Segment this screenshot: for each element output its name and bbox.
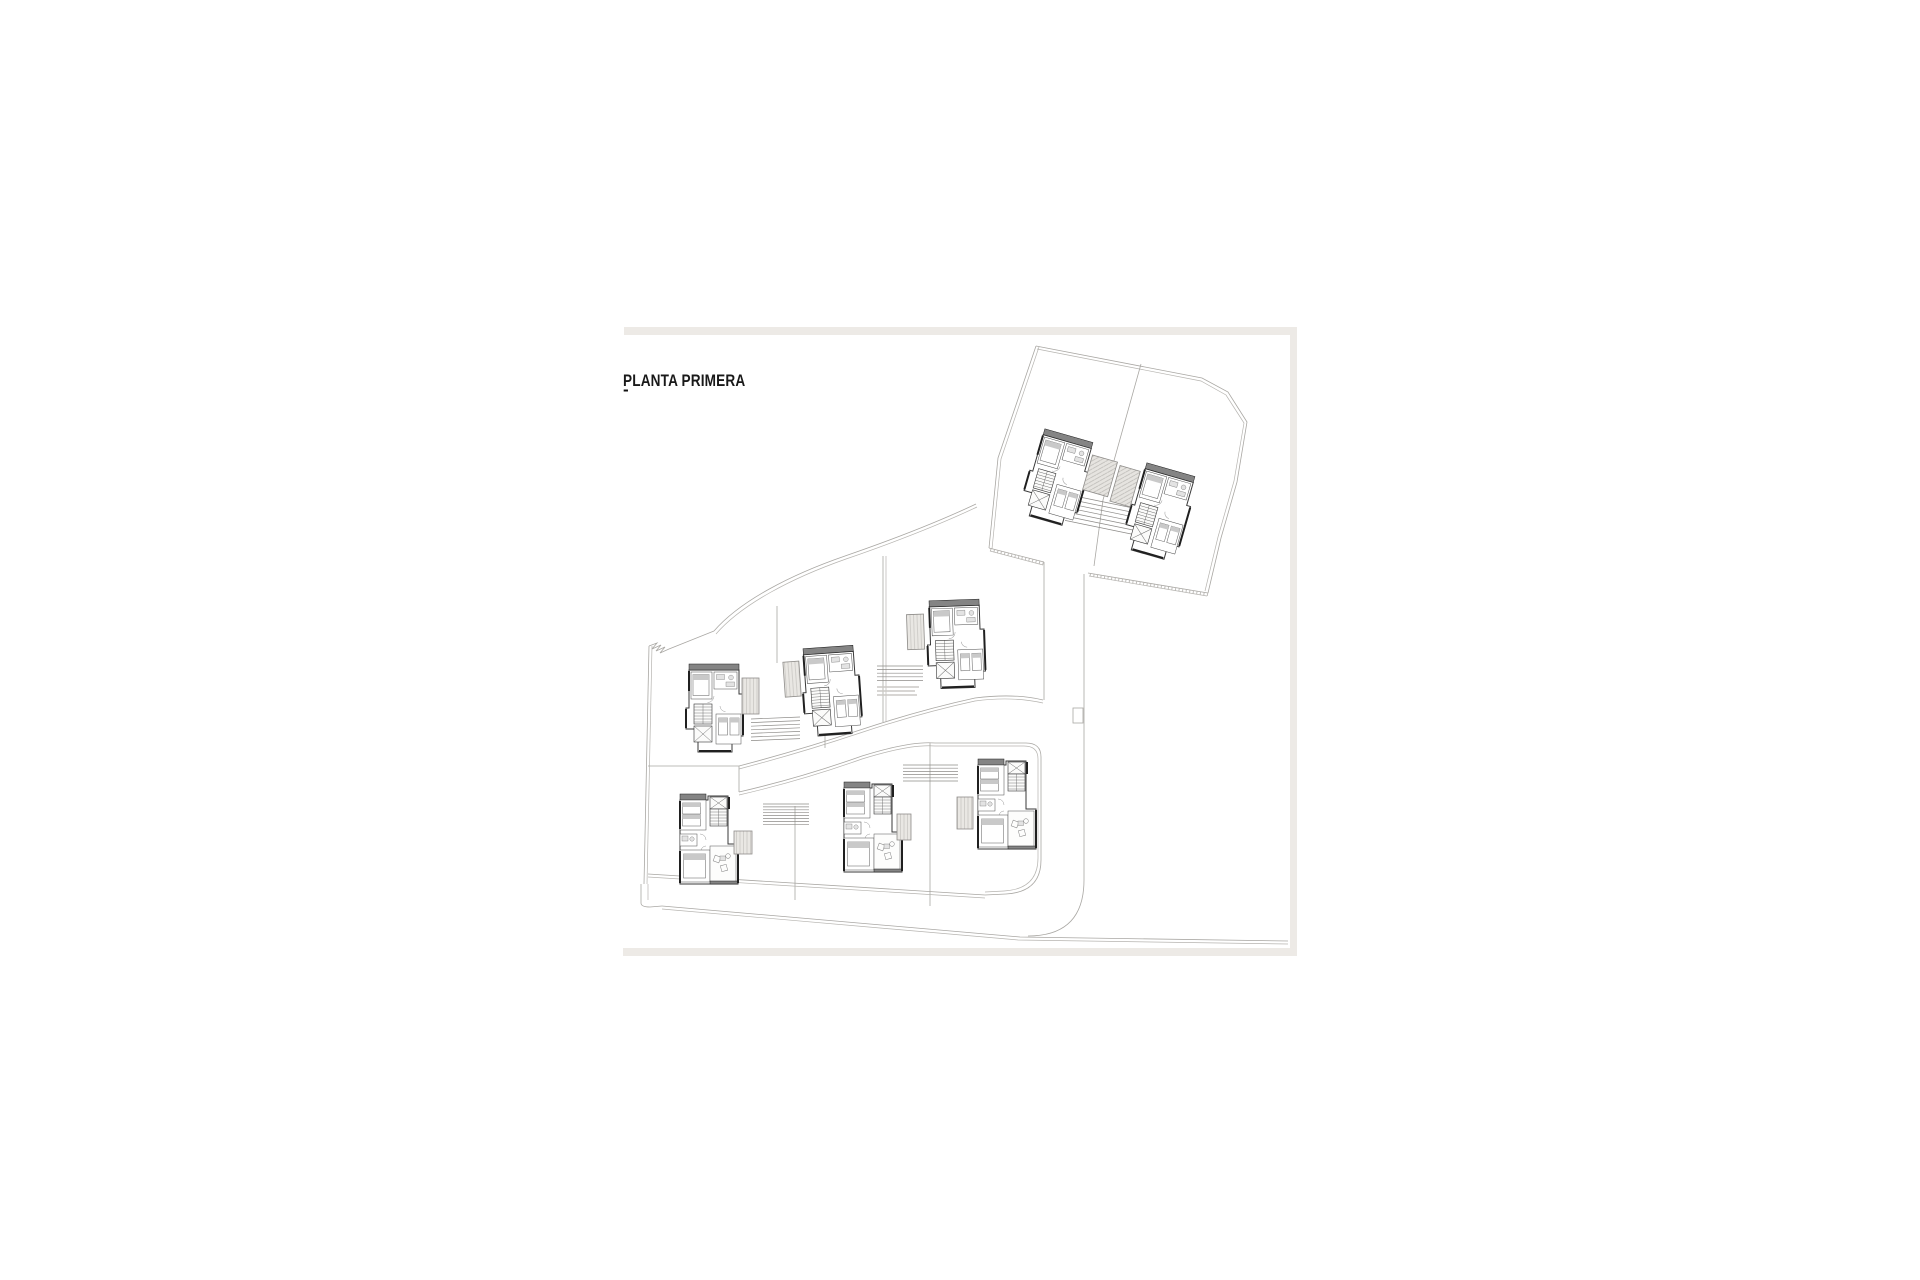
villa-3-plan xyxy=(686,664,743,752)
villa-5-plan xyxy=(926,599,986,689)
boundary-north-sawtooth xyxy=(649,631,714,653)
villa-7-plan xyxy=(844,782,902,872)
road-lower-edge-inner xyxy=(739,746,935,795)
villa-8-plan xyxy=(978,759,1036,849)
road-upper-edge xyxy=(739,696,1043,766)
steps-3 xyxy=(877,666,923,680)
boundary-west xyxy=(644,646,649,884)
villa-1 xyxy=(1018,428,1121,535)
steps-1-line xyxy=(1065,512,1133,526)
steps-4 xyxy=(763,804,809,824)
road-south-edge xyxy=(662,906,1288,941)
retaining-wall-west-inner xyxy=(990,551,1043,565)
villas xyxy=(680,428,1199,884)
page: PLANTA PRIMERA - xyxy=(0,0,1920,1280)
plot-topright-west-inner xyxy=(992,347,1039,549)
villa-6-plan xyxy=(680,794,738,884)
villa-4-pergola xyxy=(783,661,801,697)
steps-2-line xyxy=(751,739,800,741)
steps-2-line xyxy=(751,731,800,733)
villa-5-pergola xyxy=(906,614,924,650)
retaining-wall-west xyxy=(989,548,1044,562)
villa-7 xyxy=(844,782,911,872)
villa-3-pergola xyxy=(742,678,759,714)
steps-2-line xyxy=(751,721,800,723)
corridor-gate xyxy=(1073,708,1083,723)
retaining-wall-east-ticks xyxy=(1088,575,1208,595)
villa-1-plan xyxy=(1018,428,1097,528)
retaining-wall-west-ticks xyxy=(990,550,1044,564)
plot-topright xyxy=(989,346,1247,596)
villa-6-pergola xyxy=(734,831,752,854)
steps-2-line xyxy=(751,735,800,737)
villa-5 xyxy=(906,599,986,690)
steps-2-line xyxy=(751,724,800,726)
steps-2 xyxy=(751,717,800,741)
steps-5 xyxy=(903,765,958,781)
villa-8 xyxy=(957,759,1036,849)
villa-4-plan xyxy=(800,645,863,737)
villa-6 xyxy=(680,794,752,884)
road-south-left-cap xyxy=(641,884,662,907)
steps-2-line xyxy=(751,717,800,719)
steps-1-line xyxy=(1065,520,1133,534)
corridor-right-edge xyxy=(1028,574,1084,936)
villa-3 xyxy=(686,664,759,752)
road-upper-edge-inner xyxy=(739,699,1043,769)
villa-8-pergola xyxy=(957,797,973,829)
site-plan xyxy=(0,0,1920,1280)
villa-7-pergola xyxy=(897,814,911,840)
boundary-west-inner xyxy=(647,646,652,884)
steps-2-line xyxy=(751,728,800,730)
